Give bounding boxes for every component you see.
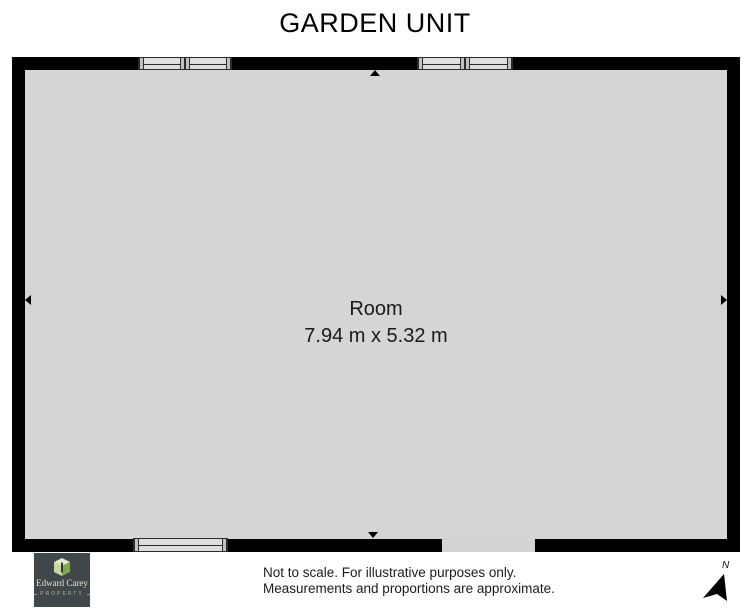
floor-plan: Room 7.94 m x 5.32 m (12, 57, 740, 552)
window-pane (423, 58, 460, 69)
agency-name: Edward Carey (34, 578, 90, 588)
page-title: GARDEN UNIT (0, 8, 750, 39)
compass: N (699, 556, 743, 612)
room-label: Room 7.94 m x 5.32 m (12, 296, 740, 350)
window-pane (470, 58, 507, 69)
north-arrow-icon (699, 556, 743, 612)
window-top-right (417, 57, 513, 70)
window-post (226, 58, 231, 69)
compass-north-label: N (722, 560, 729, 571)
floorplan-page: GARDEN UNIT (0, 0, 750, 616)
tagline-dash (87, 594, 90, 595)
cube-icon (53, 557, 71, 577)
disclaimer-line-1: Not to scale. For illustrative purposes … (263, 565, 555, 581)
window-pane (144, 58, 180, 69)
room-dimensions: 7.94 m x 5.32 m (12, 323, 740, 350)
window-top-left (138, 57, 232, 70)
room-name: Room (12, 296, 740, 323)
window-pane (139, 539, 222, 551)
window-bottom-left (133, 538, 228, 552)
window-post (222, 539, 227, 551)
agency-logo: Edward Carey PROPERTY (34, 553, 90, 607)
disclaimer-line-2: Measurements and proportions are approxi… (263, 581, 555, 597)
agency-tagline: PROPERTY (34, 591, 90, 597)
door-opening (442, 538, 535, 552)
window-post (507, 58, 512, 69)
disclaimer: Not to scale. For illustrative purposes … (263, 565, 555, 596)
wall-marker-down-icon (368, 532, 378, 538)
window-pane (190, 58, 226, 69)
tagline-dash (34, 594, 37, 595)
wall-marker-up-icon (370, 70, 380, 76)
